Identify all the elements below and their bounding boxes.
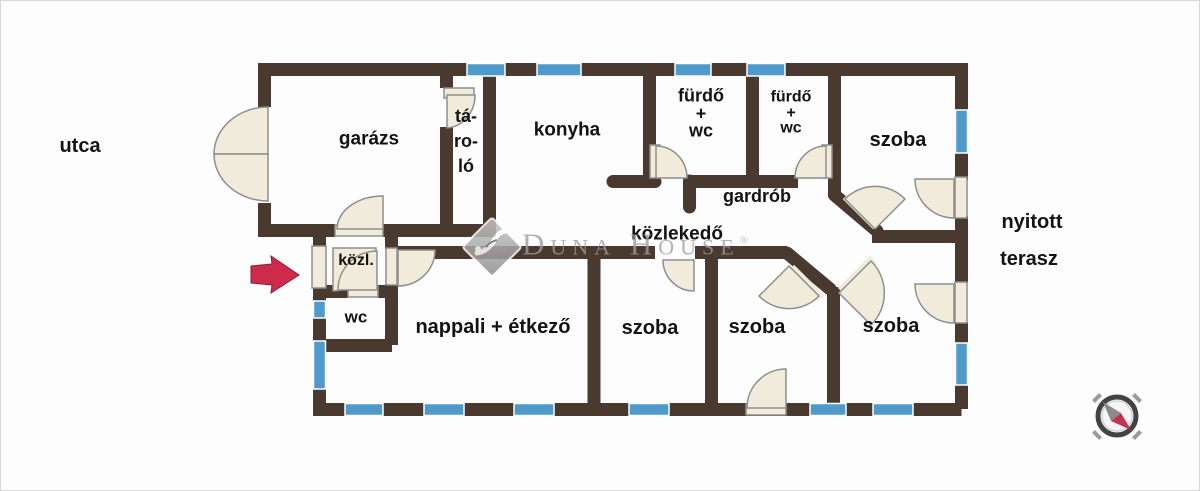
label-room-bottom-right: szoba <box>863 316 920 336</box>
watermark-brand-text: Duna House® <box>522 227 748 263</box>
label-bathroom-2: fürdő + wc <box>771 89 812 136</box>
label-wardrobe: gardrób <box>723 187 791 205</box>
entrance-arrow-icon <box>251 256 299 293</box>
label-wc: wc <box>345 309 368 326</box>
compass-icon <box>1092 393 1142 440</box>
label-hall-small: közl. <box>338 253 374 269</box>
label-terrace-line1: nyitott <box>1001 212 1062 232</box>
label-living-dining: nappali + étkező <box>415 317 570 337</box>
label-kitchen: konyha <box>534 121 601 140</box>
garage-door-leaf-top <box>214 107 268 154</box>
label-bathroom-1: fürdő + wc <box>678 88 724 141</box>
label-room-mid-2: szoba <box>729 317 786 337</box>
watermark-registered-mark: ® <box>740 234 748 246</box>
label-room-top-right: szoba <box>870 130 927 150</box>
label-street: utca <box>59 136 100 156</box>
garage-door-leaf-bottom <box>214 154 268 201</box>
floorplan-page: utca garázs tá- ro- ló konyha fürdő + wc… <box>0 0 1200 491</box>
watermark-brand-name: Duna House <box>522 227 740 262</box>
label-room-mid-1: szoba <box>622 318 679 338</box>
label-terrace-line2: terasz <box>1000 249 1058 269</box>
label-garage: garázs <box>339 130 399 149</box>
label-storage: tá- ro- ló <box>454 104 478 178</box>
